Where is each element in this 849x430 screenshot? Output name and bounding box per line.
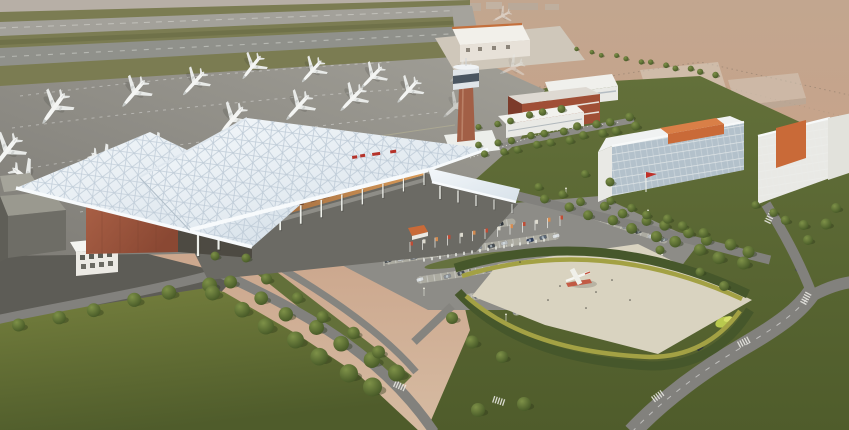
slab-a-end [598,146,612,202]
tower-shaft [457,86,475,142]
tower-shaft-highlight [462,88,463,140]
cargo-building [452,24,530,62]
slab-b-wing [828,113,849,180]
airport-rendering-stage: Aerial rendering of an airport terminal … [0,0,849,430]
airport-aerial-rendering: Aerial rendering of an airport terminal … [0,0,849,430]
